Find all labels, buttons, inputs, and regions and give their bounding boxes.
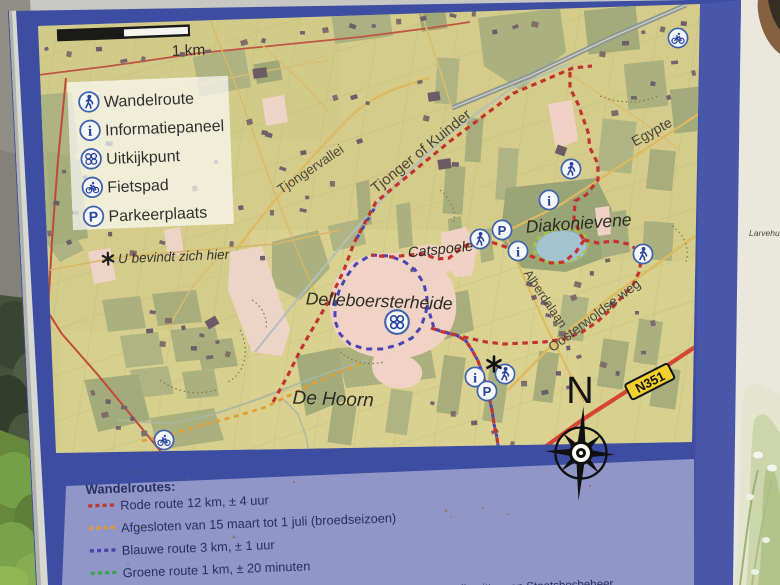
svg-text:Wandelroute: Wandelroute [104, 90, 195, 111]
svg-text:De Hoorn: De Hoorn [292, 388, 374, 412]
svg-text:i: i [547, 194, 551, 209]
svg-text:Uitkijkpunt: Uitkijkpunt [106, 148, 181, 168]
svg-text:Larvehu: Larvehu [749, 228, 780, 238]
svg-text:P: P [483, 384, 492, 399]
svg-text:i: i [473, 371, 477, 386]
svg-text:i: i [516, 245, 520, 260]
svg-text:1 km: 1 km [172, 42, 206, 60]
svg-text:i: i [88, 124, 93, 140]
svg-text:N: N [566, 370, 593, 412]
svg-text:P: P [498, 223, 507, 238]
svg-text:Fietspad: Fietspad [107, 177, 169, 196]
svg-text:P: P [89, 208, 99, 224]
